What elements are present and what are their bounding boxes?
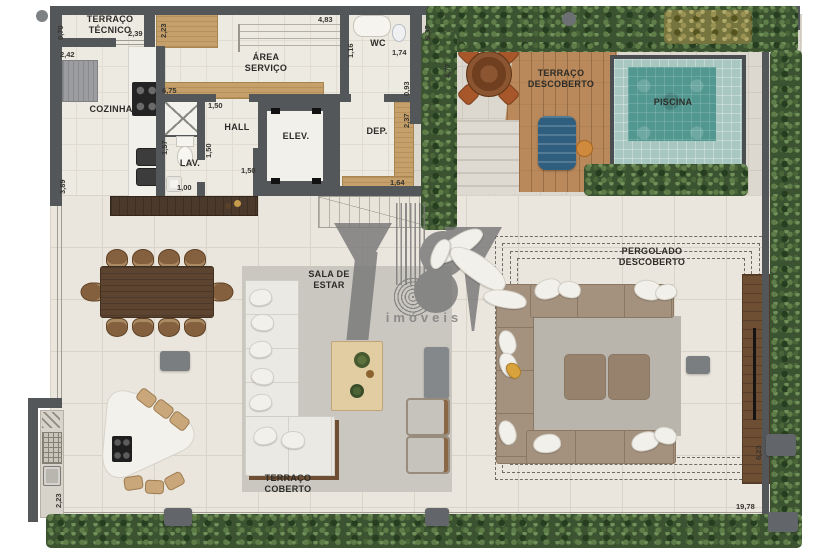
label-line: DEP. [366, 126, 387, 137]
wall [249, 94, 351, 102]
terrace-stairs [452, 120, 519, 194]
label-line: COZINHA [89, 104, 132, 115]
dining-chair [184, 318, 206, 337]
window [57, 204, 62, 402]
label-line: WC [370, 38, 386, 49]
room-label-lav: LAV. [180, 158, 200, 169]
island-stool [123, 475, 144, 492]
label-line: ÁREA [245, 52, 287, 63]
dim-6-23: 6,23 [754, 445, 763, 460]
label-line: LAV. [180, 158, 200, 169]
vent-diagonal [42, 412, 60, 428]
ottoman [564, 354, 606, 400]
elevator-rail [271, 178, 280, 184]
dim-2-23-bottom: 2,23 [54, 493, 63, 508]
room-label-wc: WC [370, 38, 386, 49]
armchair [406, 436, 450, 474]
wc-counter [353, 15, 391, 37]
column [164, 508, 192, 526]
dim-2-37: 2,37 [402, 113, 411, 128]
room-label-terraco-tecnico: TERRAÇO TÉCNICO [87, 14, 134, 36]
deco-sphere [36, 10, 48, 22]
wall [197, 182, 205, 196]
column [768, 512, 798, 532]
label-line: PERGOLADO [619, 246, 685, 257]
wall [144, 6, 155, 47]
dim-3-89: 3,89 [58, 179, 67, 194]
clothesline [238, 24, 348, 52]
island-stool [145, 480, 164, 495]
bowl [366, 370, 374, 378]
elevator-rail [271, 108, 280, 114]
round-table [466, 51, 512, 97]
label-line: SALA DE [308, 269, 349, 280]
dim-19-78: 19,78 [736, 502, 755, 511]
pool [610, 55, 746, 171]
side-table [160, 351, 190, 371]
bar-decor [225, 203, 231, 209]
coffee-table [331, 341, 383, 411]
room-label-pergolado: PERGOLADO DESCOBERTO [619, 246, 685, 268]
elevator-rail [312, 178, 321, 184]
dim-1-16: 1,16 [346, 43, 355, 58]
label-line: DESCOBERTO [528, 79, 594, 90]
elevator-rail [312, 108, 321, 114]
watermark-subtext: imóveis [374, 310, 474, 325]
dim-1-74: 1,74 [392, 48, 407, 57]
tv-stand [424, 347, 449, 399]
room-label-terraco-descoberto: TERRAÇO DESCOBERTO [528, 68, 594, 90]
dim-0-70: 0,70 [56, 25, 65, 40]
side-table-round [576, 140, 593, 157]
deco-sphere [562, 12, 576, 26]
window [114, 40, 146, 45]
label-line: TERRAÇO [87, 14, 134, 25]
column [766, 434, 796, 456]
ottoman [608, 354, 650, 400]
room-label-sala-estar: SALA DE ESTAR [308, 269, 349, 291]
label-line: ELEV. [283, 131, 310, 142]
dim-1-50-hall-left: 1,50 [204, 143, 213, 158]
floor-grille [42, 432, 62, 464]
dim-1-50-hall-door: 1,50 [241, 166, 256, 175]
hedge-pool-south [584, 164, 748, 196]
island-cooktop [112, 436, 132, 462]
dim-2-42: 2,42 [60, 50, 75, 59]
dim-9-37: 9,37 [423, 25, 432, 40]
floor-plan: imóveis TERRAÇO TÉCNICO ÁREA SERVIÇO WC … [0, 0, 838, 554]
plant [350, 384, 364, 398]
column [425, 508, 449, 526]
label-line: TÉCNICO [87, 25, 134, 36]
dim-2-23-top: 2,23 [159, 23, 168, 38]
dim-6-75: 6,75 [162, 86, 177, 95]
ac-unit [62, 60, 98, 102]
utility-box [43, 466, 61, 486]
label-line: COBERTO [265, 484, 312, 495]
room-label-terraco-coberto: TERRAÇO COBERTO [265, 473, 312, 495]
hedge-bottom [46, 514, 802, 548]
dining-chair [158, 318, 180, 337]
dim-2-39: 2,39 [128, 29, 143, 38]
dining-chair [106, 318, 128, 337]
dim-1-64: 1,64 [390, 178, 405, 187]
wall [156, 94, 216, 102]
dim-4-77: 4,77 [443, 63, 452, 78]
label-line: DESCOBERTO [619, 257, 685, 268]
wall [28, 404, 38, 522]
dim-4-83: 4,83 [318, 15, 333, 24]
armchair [406, 398, 450, 436]
label-line: TERRAÇO [265, 473, 312, 484]
dim-1-57: 1,57 [160, 140, 169, 155]
dining-chair [132, 318, 154, 337]
elevator-cab [267, 111, 323, 181]
label-line: ESTAR [308, 280, 349, 291]
plant [354, 352, 370, 368]
room-label-dep: DEP. [366, 126, 387, 137]
label-line: TERRAÇO [528, 68, 594, 79]
label-line: SERVIÇO [245, 63, 287, 74]
room-label-area-servico: ÁREA SERVIÇO [245, 52, 287, 74]
label-line: HALL [224, 122, 249, 133]
chaise-lounge [538, 116, 576, 170]
room-label-elev: ELEV. [283, 131, 310, 142]
bush-olive [664, 10, 752, 44]
label-line: PISCINA [654, 97, 693, 108]
dim-1-50-hall-top: 1,50 [208, 101, 223, 110]
wall [156, 46, 165, 196]
room-label-hall: HALL [224, 122, 249, 133]
dim-0-93: 0,93 [402, 81, 411, 96]
dim-1-00: 1,00 [177, 183, 192, 192]
wc-toilet [392, 24, 406, 42]
tv-screen [753, 328, 756, 420]
room-label-piscina: PISCINA [654, 97, 693, 108]
room-label-cozinha: COZINHA [89, 104, 132, 115]
wall [332, 102, 340, 190]
bar-decor [234, 200, 241, 207]
side-table [686, 356, 710, 374]
dining-table [100, 266, 214, 318]
